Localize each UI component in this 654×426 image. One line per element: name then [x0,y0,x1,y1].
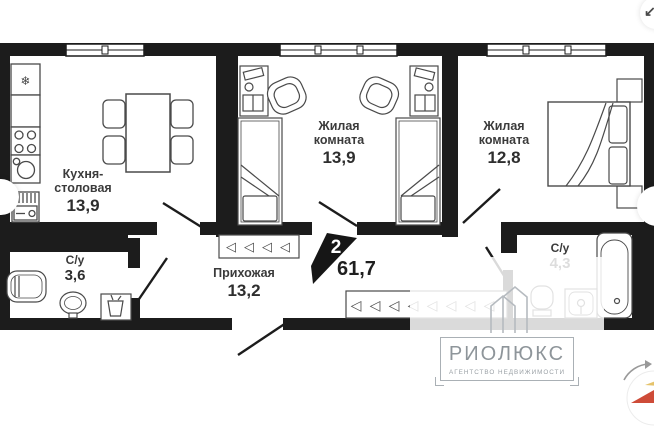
room-name: Прихожая [198,266,290,280]
door-entrance [238,321,289,355]
kitchen-cabinet [11,95,40,127]
rotate-arrow-head [645,360,652,369]
snowflake-icon: ❄ [20,74,30,88]
room-label-living-2: Жилая комната 12,8 [459,119,549,167]
door-bath-small [137,258,167,302]
room-area: 3,6 [47,268,103,285]
living-2-furniture [548,79,642,208]
door-living-2 [463,189,500,223]
single-bed-left [238,118,282,225]
room-label-bath-small: С/у 3,6 [47,254,103,285]
room-name: Жилая комната [459,119,549,147]
office-chair [264,73,310,118]
hanger-icon: ◁ [389,298,400,314]
washbasin-unit [7,271,46,302]
room-label-hallway: Прихожая 13,2 [198,266,290,300]
chair [171,136,193,164]
washing-machine [101,294,131,320]
room-label-living-1: Жилая комната 13,9 [293,119,385,167]
room-name: Жилая комната [293,119,385,147]
room-name: Кухня-столовая [38,167,128,195]
collapse-arrow-icon: ↙ [641,3,654,20]
hanger-icon: ◁ [244,240,254,255]
office-chair [356,73,402,118]
window-living-2 [487,44,606,56]
door-living-1 [319,202,357,226]
rooms-count: 2 [323,237,349,259]
hanger-icon: ◁ [226,240,236,255]
agency-house-icon [484,283,530,333]
window-kitchen [66,44,144,56]
agency-tagline: АГЕНТСТВО НЕДВИЖИМОСТИ [443,369,571,376]
room-name: С/у [532,242,588,255]
hanger-icon: ◁ [370,298,381,314]
room-name: С/у [47,254,103,267]
agency-watermark: РИОЛЮКС АГЕНТСТВО НЕДВИЖИМОСТИ [410,257,604,412]
double-bed [548,102,630,186]
room-area: 12,8 [459,148,549,167]
hanger-icon: ◁ [351,298,362,314]
window-living-1 [280,44,397,56]
single-bed-right [396,118,440,225]
room-area: 13,9 [293,148,385,167]
room-area: 13,9 [38,196,128,215]
door-kitchen [163,203,203,228]
room-area: 13,2 [198,281,290,300]
nightstand [617,79,642,102]
hanger-icon: ◁ [280,240,290,255]
hanger-icon: ◁ [262,240,272,255]
room-label-kitchen: Кухня-столовая 13,9 [38,167,128,215]
dining-table [126,94,170,172]
chair [103,100,125,128]
agency-brand: РИОЛЮКС [443,343,571,366]
floor-plan-canvas: ❄ [0,0,654,426]
agency-name-box: РИОЛЮКС АГЕНТСТВО НЕДВИЖИМОСТИ [440,337,574,381]
chair [171,100,193,128]
kitchen-sink [11,155,40,183]
chair [103,136,125,164]
desk-right [410,66,438,116]
toilet [60,292,86,318]
stove [11,127,40,155]
compass-rotate-button[interactable] [612,358,654,426]
desk-left [240,66,268,116]
total-area: 61,7 [337,258,387,281]
